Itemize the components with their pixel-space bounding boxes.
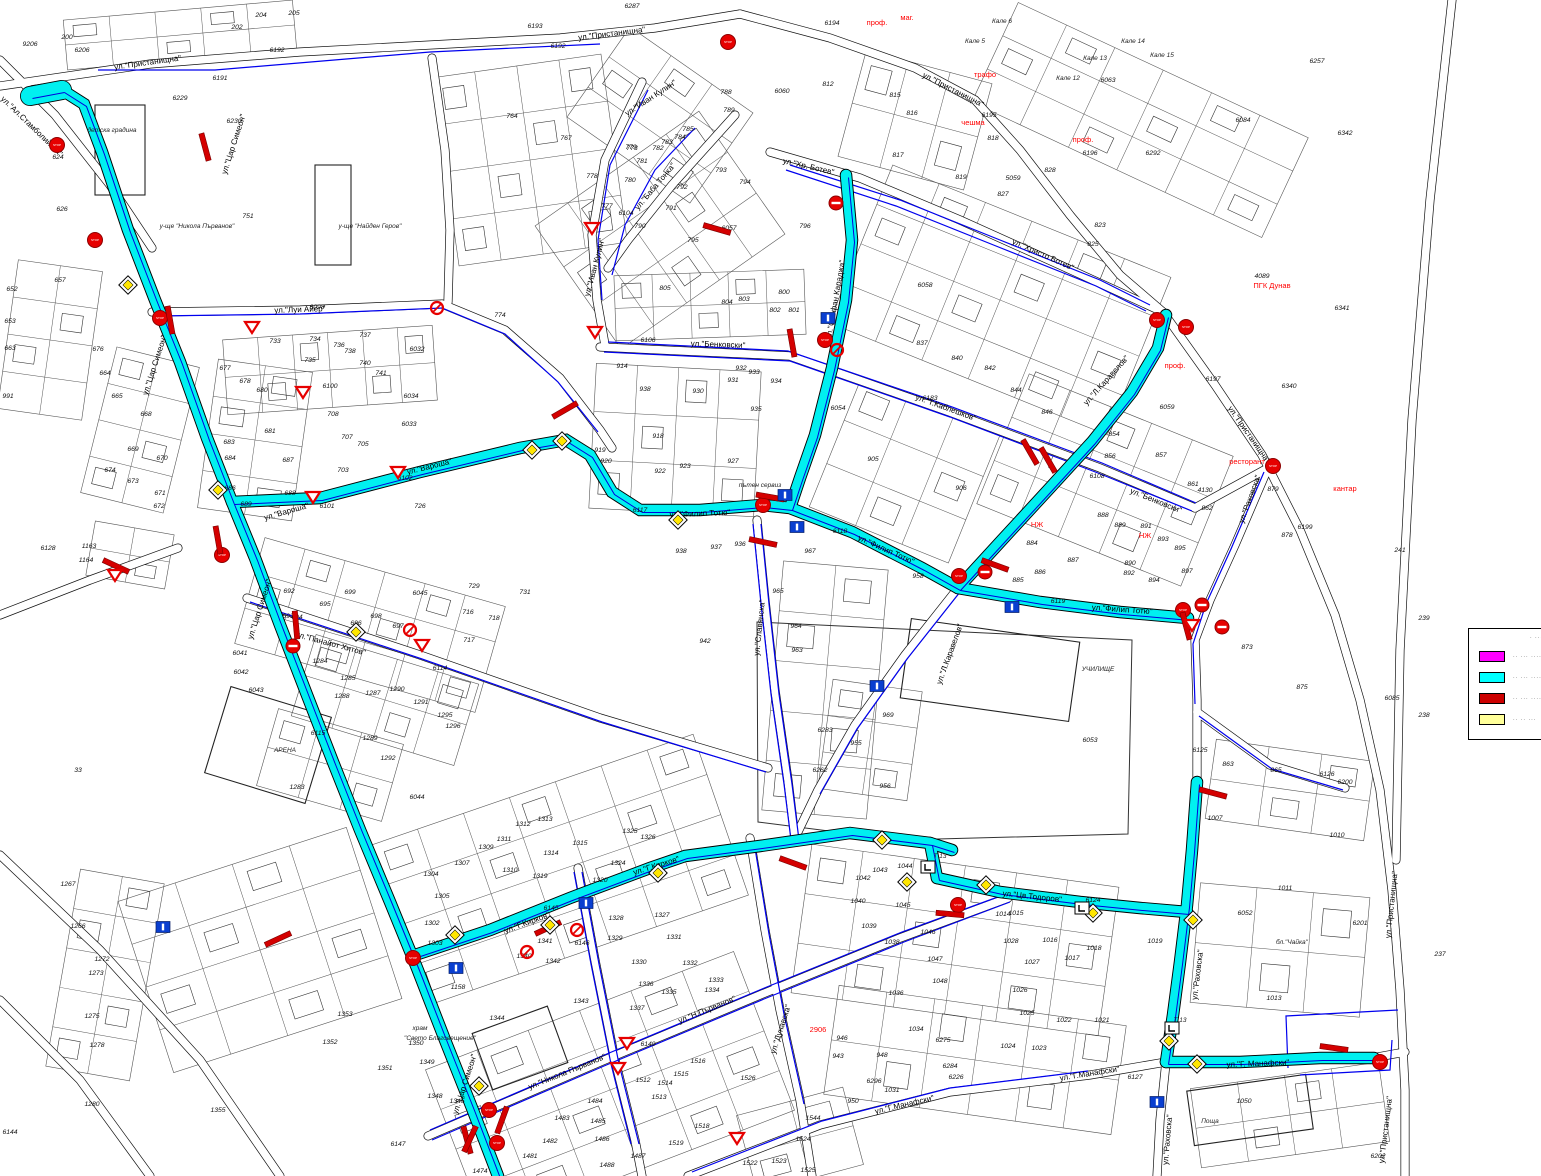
parcel-number: 202 — [230, 24, 243, 31]
parcel-number: 1280 — [84, 1101, 99, 1108]
parcel-number: 683 — [223, 439, 235, 446]
parcel-number: 779 — [625, 144, 637, 151]
street-label: ул."Луи Айер" — [274, 304, 326, 315]
parcel-number: 938 — [675, 548, 687, 555]
parcel-number: 1515 — [673, 1071, 688, 1078]
parcel-number: 652 — [6, 286, 18, 293]
parcel-number: 1048 — [932, 978, 947, 985]
parcel-number: 828 — [1044, 167, 1056, 174]
parcel-number: 237 — [1433, 951, 1446, 958]
parcel-number: 1312 — [515, 821, 530, 828]
parcel-number: 796 — [799, 223, 811, 230]
parcel-block — [291, 635, 478, 766]
parcel-number: 1487 — [630, 1153, 645, 1160]
parcel-number: 665 — [111, 393, 123, 400]
parcel-number: 6045 — [412, 590, 427, 597]
parcel-number: 673 — [127, 478, 139, 485]
parcel-number: 767 — [560, 135, 572, 142]
parcel-block — [829, 165, 1171, 435]
no-entry-sign-icon — [286, 639, 300, 653]
parcel-number: 937 — [710, 544, 722, 551]
map-legend: · ··· ·· ··· ······ ··· ······ ··· ·····… — [1468, 628, 1541, 740]
parcel-number: 9206 — [22, 41, 37, 48]
parcel-number: 789 — [723, 107, 735, 114]
parcel-number: 1523 — [771, 1158, 786, 1165]
parcel-number: 1018 — [1086, 945, 1101, 952]
parcel-number: 827 — [997, 191, 1009, 198]
parcel-number: 790 — [634, 223, 646, 230]
parcel-number: 734 — [309, 336, 321, 343]
parcel-block — [614, 269, 806, 341]
parcel-number: 737 — [359, 332, 371, 339]
parcel-block — [223, 325, 438, 414]
parcel-number: 741 — [375, 370, 387, 377]
parcel-block — [1205, 739, 1375, 840]
place-label: Кале 13 — [1083, 55, 1107, 62]
parcel-number: 684 — [224, 455, 236, 462]
parcel-number: 6085 — [1384, 695, 1399, 702]
place-label: Кале 6 — [992, 18, 1012, 25]
place-label: у-ще "Найден Геров" — [338, 222, 403, 230]
parcel-number: 738 — [344, 348, 356, 355]
parcel-number: 927 — [727, 458, 739, 465]
parcel-number: 792 — [676, 184, 688, 191]
building-outline — [315, 165, 351, 265]
info-sign-icon — [1150, 1097, 1164, 1108]
parcel-number: 863 — [1222, 761, 1234, 768]
parcel-number: 1343 — [573, 998, 588, 1005]
parcel-number: 1486 — [594, 1136, 609, 1143]
legend-item: ·· ··· ···· — [1479, 672, 1541, 683]
place-label: Кале 12 — [1056, 75, 1080, 82]
parcel-number: 678 — [239, 378, 251, 385]
parcel-number: 1163 — [82, 543, 97, 550]
parcel-number: 1484 — [587, 1098, 602, 1105]
stop-sign-icon: STOP — [1266, 459, 1281, 474]
parcel-number: 6201 — [1352, 920, 1367, 927]
parcel-number: 6127 — [1127, 1074, 1142, 1081]
white-sign-icon — [1165, 1022, 1179, 1034]
parcel-number: 782 — [652, 145, 664, 152]
parcel-number: 1284 — [312, 658, 327, 665]
svg-text:STOP: STOP — [1376, 1060, 1384, 1064]
parcel-number: 689 — [240, 501, 252, 508]
stop-sign-icon: STOP — [756, 498, 771, 513]
parcel-number: 967 — [804, 548, 816, 555]
parcel-number: 670 — [156, 455, 168, 462]
parcel-number: 914 — [616, 363, 628, 370]
parcel-number: 1289 — [362, 735, 377, 742]
parcel-number: 1025 — [1019, 1010, 1034, 1017]
stop-sign-icon: STOP — [952, 569, 967, 584]
parcel-number: 846 — [1041, 409, 1053, 416]
parcel-number: 922 — [654, 468, 666, 475]
place-label: Кале 14 — [1121, 38, 1145, 45]
street-label: ул."Г.Манафски" — [874, 1093, 935, 1115]
parcel-number: 6034 — [403, 393, 418, 400]
legend-header: · ··· — [1469, 635, 1541, 641]
parcel-number: 1325 — [622, 828, 637, 835]
parcel-number: 1522 — [742, 1160, 757, 1167]
parcel-number: 674 — [104, 467, 116, 474]
street-label: ул."Пристанищна" — [1377, 1096, 1394, 1164]
parcel-number: 800 — [778, 289, 790, 296]
parcel-number: 664 — [99, 370, 111, 377]
parcel-number: 1275 — [84, 1013, 99, 1020]
parcel-number: 857 — [1155, 452, 1167, 459]
parcel-number: 875 — [1296, 684, 1308, 691]
parcel-number: 886 — [1034, 569, 1046, 576]
parcel-number: 6084 — [1235, 117, 1250, 124]
parcel-number: 938 — [639, 386, 651, 393]
parcel-number: 671 — [154, 490, 166, 497]
parcel-number: 1034 — [908, 1026, 923, 1033]
parcel-number: 1324 — [610, 860, 625, 867]
parcel-number: 920 — [600, 458, 612, 465]
svg-text:STOP: STOP — [759, 503, 767, 507]
parcel-number: 1290 — [389, 686, 404, 693]
parcel-number: 879 — [1267, 486, 1279, 493]
parcel-number: 802 — [769, 307, 781, 314]
no-entry-sign-icon — [1215, 620, 1229, 634]
parcel-number: 1334 — [704, 987, 719, 994]
parcel-number: 726 — [414, 503, 426, 510]
svg-text:STOP: STOP — [493, 1141, 501, 1145]
parcel-number: 708 — [327, 411, 339, 418]
parcel-number: 844 — [1010, 387, 1022, 394]
street-label: ул."Пристанищна" — [578, 25, 646, 42]
parcel-number: 1516 — [690, 1058, 705, 1065]
parcel-number: 888 — [1097, 512, 1109, 519]
labels-layer: 9206200202204205620661926191622962306246… — [0, 3, 1446, 1175]
parcel-number: 943 — [832, 1053, 844, 1060]
parcel-number: 653 — [4, 318, 16, 325]
parcel-number: 1313 — [537, 816, 552, 823]
parcel-number: 933 — [748, 369, 760, 376]
parcel-number: 6100 — [322, 383, 337, 390]
stop-sign-icon: STOP — [1373, 1055, 1388, 1070]
no-entry-sign-icon — [978, 565, 992, 579]
parcel-number: 958 — [912, 573, 924, 580]
parcel-number: 931 — [727, 377, 739, 384]
parcel-number: 812 — [822, 81, 834, 88]
closure-bar-icon — [264, 931, 292, 948]
parcel-number: 1344 — [489, 1015, 504, 1022]
parcel-number: 204 — [254, 12, 267, 19]
poi-red-label: чешма — [961, 118, 985, 127]
parcel-number: 6108 — [1089, 473, 1104, 480]
parcel-number: 4089 — [1254, 273, 1269, 280]
parcel-number: 6128 — [40, 545, 55, 552]
parcel-number: 6341 — [1334, 305, 1349, 312]
parcel-number: 1307 — [454, 860, 469, 867]
parcel-number: 1027 — [1024, 959, 1039, 966]
legend-item: ·· ··· ···· — [1479, 693, 1541, 704]
parcel-number: 5059 — [1005, 175, 1020, 182]
parcel-number: 751 — [242, 213, 254, 220]
parcel-number: 956 — [879, 783, 891, 790]
stop-sign-icon: STOP — [951, 898, 966, 913]
parcel-number: 6192 — [269, 47, 284, 54]
parcel-number: 6226 — [948, 1074, 963, 1081]
svg-text:STOP: STOP — [1269, 464, 1277, 468]
parcel-number: 932 — [735, 365, 747, 372]
parcel-number: 948 — [876, 1052, 888, 1059]
parcel-number: 1482 — [542, 1138, 557, 1145]
parcel-number: 6054 — [830, 405, 845, 412]
poi-red-label: 2906 — [810, 1025, 827, 1034]
parcel-number: 1296 — [445, 723, 460, 730]
svg-text:STOP: STOP — [409, 956, 417, 960]
parcel-number: 1333 — [708, 977, 723, 984]
parcel-number: 785 — [682, 126, 694, 133]
parcel-number: 6147 — [390, 1141, 405, 1148]
parcel-number: 1046 — [920, 929, 935, 936]
parcel-number: 1044 — [897, 863, 912, 870]
parcel-number: 6284 — [942, 1063, 957, 1070]
parcel-number: 1291 — [413, 699, 428, 706]
parcel-number: 842 — [984, 365, 996, 372]
parcel-number: 963 — [791, 647, 803, 654]
parcel-number: 1295 — [437, 712, 452, 719]
parcel-number: 1015 — [1008, 910, 1023, 917]
stop-sign-icon: STOP — [88, 233, 103, 248]
poi-red-label: кантар — [1333, 484, 1356, 493]
street-label: ул."Филип Тотю" — [856, 533, 915, 566]
closure-bar-icon — [779, 856, 807, 870]
poi-red-label: НЖ — [1031, 520, 1043, 529]
parcel-number: 895 — [1174, 545, 1186, 552]
parcel-number: 1337 — [629, 1005, 644, 1012]
parcel-number: 801 — [788, 307, 800, 314]
priority-road-sign-icon — [898, 873, 916, 891]
stop-sign-icon: STOP — [50, 138, 65, 153]
info-sign-icon — [449, 963, 463, 974]
parcel-number: 241 — [1393, 547, 1406, 554]
parcel-number: 1315 — [572, 840, 587, 847]
parcel-number: 6342 — [1337, 130, 1352, 137]
poi-red-label: ресторант — [1229, 457, 1265, 466]
parcel-number: 718 — [488, 615, 500, 622]
parcel-number: 717 — [463, 637, 475, 644]
info-sign-icon — [870, 681, 884, 692]
parcel-number: 795 — [687, 237, 699, 244]
stop-sign-icon: STOP — [153, 311, 168, 326]
parcel-number: 923 — [679, 463, 691, 470]
parcel-number: 692 — [283, 588, 295, 595]
parcel-number: 1355 — [210, 1107, 225, 1114]
parcel-number: 6058 — [917, 282, 932, 289]
stop-sign-icon: STOP — [482, 1103, 497, 1118]
parcel-number: 892 — [1123, 570, 1135, 577]
parcel-number: 729 — [468, 583, 480, 590]
parcel-number: 1326 — [640, 834, 655, 841]
parcel-number: 1267 — [60, 881, 75, 888]
info-sign-icon — [821, 313, 835, 324]
parcel-number: 1158 — [451, 984, 466, 991]
parcel-number: 6053 — [1082, 737, 1097, 744]
parcel-number: 6043 — [248, 687, 263, 694]
parcel-number: 1305 — [434, 893, 449, 900]
parcel-number: 784 — [674, 134, 686, 141]
parcel-number: 1514 — [657, 1080, 672, 1087]
parcel-number: 794 — [739, 179, 751, 186]
parcel-number: 1287 — [365, 690, 380, 697]
parcel-number: 239 — [1417, 615, 1430, 622]
info-sign-icon — [579, 898, 593, 909]
parcel-number: 6193 — [527, 23, 542, 30]
parcel-number: 6126 — [1319, 771, 1334, 778]
parcel-number: 783 — [661, 139, 673, 146]
info-sign-icon — [156, 922, 170, 933]
parcel-number: 1292 — [380, 755, 395, 762]
parcel-number: 1273 — [88, 970, 103, 977]
parcel-number: 6206 — [74, 47, 89, 54]
parcel-number: 1283 — [289, 784, 304, 791]
parcel-number: 6118 — [833, 528, 848, 535]
parcel-number: 676 — [92, 346, 104, 353]
parcel-number: 1016 — [1042, 937, 1057, 944]
parcel-number: 918 — [652, 433, 664, 440]
parcel-number: 1352 — [322, 1039, 337, 1046]
svg-text:STOP: STOP — [53, 143, 61, 147]
street-label: ул."Г. Манафски" — [1226, 1058, 1289, 1069]
parcel-number: 6194 — [824, 20, 839, 27]
parcel-number: 1518 — [694, 1123, 709, 1130]
no-stopping-sign-icon — [404, 624, 416, 636]
parcel-number: 815 — [889, 92, 901, 99]
parcel-number: 699 — [344, 589, 356, 596]
parcel-number: 865 — [1270, 767, 1282, 774]
parcel-number: 891 — [1140, 523, 1152, 530]
parcel-number: 731 — [519, 589, 531, 596]
parcel-number: 1311 — [497, 836, 512, 843]
closure-bar-icon — [1320, 1043, 1348, 1052]
parcel-number: 950 — [847, 1098, 859, 1105]
street-label: ул."Христо Ботев" — [1011, 237, 1076, 272]
parcel-number: 889 — [1114, 522, 1126, 529]
poi-red-label: НЖ — [1139, 531, 1151, 540]
place-label: Кале 5 — [965, 38, 985, 45]
place-label: детска градина — [87, 126, 136, 134]
parcel-number: 733 — [269, 338, 281, 345]
parcel-number: 1349 — [419, 1059, 434, 1066]
stop-sign-icon: STOP — [721, 35, 736, 50]
parcel-number: 681 — [264, 428, 276, 435]
parcel-number: 1328 — [608, 915, 623, 922]
poi-red-label: проф. — [1165, 361, 1186, 370]
street-label: ул."Г.Манафски" — [1059, 1064, 1120, 1082]
place-label: храм — [412, 1025, 428, 1032]
parcel-number: 703 — [337, 467, 349, 474]
parcel-number: 6063 — [1100, 77, 1115, 84]
legend-swatch-icon — [1479, 693, 1505, 704]
parcel-number: 930 — [692, 388, 704, 395]
parcel-number: 1335 — [661, 989, 676, 996]
parcel-block — [1190, 1062, 1389, 1168]
parcel-number: 4130 — [1197, 487, 1212, 494]
parcel-number: 964 — [790, 623, 802, 630]
parcel-number: 1023 — [1031, 1045, 1046, 1052]
parcel-number: 894 — [1148, 577, 1160, 584]
parcel-number: 1329 — [607, 935, 622, 942]
parcel-number: 6287 — [624, 3, 639, 10]
parcel-number: 1320 — [592, 877, 607, 884]
parcel-number: 887 — [1067, 557, 1079, 564]
parcel-number: 817 — [892, 152, 904, 159]
svg-text:STOP: STOP — [485, 1108, 493, 1112]
stop-sign-icon: STOP — [490, 1136, 505, 1151]
parcel-number: 1278 — [89, 1042, 104, 1049]
parcel-number: 854 — [1108, 431, 1120, 438]
no-entry-sign-icon — [829, 196, 843, 210]
parcel-number: 1351 — [377, 1065, 392, 1072]
parcel-number: 1021 — [1094, 1017, 1109, 1024]
parcel-number: 805 — [659, 285, 671, 292]
parcel-number: 1038 — [884, 939, 899, 946]
parcel-number: 1164 — [79, 557, 94, 564]
legend-item: ·· ··· ···· — [1479, 651, 1541, 662]
parcel-number: 1330 — [631, 959, 646, 966]
parcel-number: 6104 — [618, 210, 633, 217]
parcel-number: 825 — [1087, 241, 1099, 248]
parcel-number: 1483 — [554, 1115, 569, 1122]
parcel-number: 697 — [392, 623, 404, 630]
parcel-number: 705 — [357, 441, 369, 448]
place-label: Т 13 — [933, 853, 946, 860]
parcel-number: 6059 — [1159, 404, 1174, 411]
parcel-number: 1341 — [537, 938, 552, 945]
parcel-number: 893 — [1157, 536, 1169, 543]
street-label: ул."Пристанищна" — [114, 53, 182, 71]
parcel-number: 707 — [341, 434, 353, 441]
street-label: ул."Бенковски" — [691, 339, 746, 350]
stop-sign-icon: STOP — [1150, 313, 1165, 328]
parcel-number: 6106 — [640, 337, 655, 344]
parcel-number: 1526 — [740, 1075, 755, 1082]
building-outline — [1187, 1074, 1313, 1145]
parcel-number: 6119 — [1051, 598, 1066, 605]
stop-sign-icon: STOP — [818, 333, 833, 348]
parcel-number: 777 — [601, 203, 613, 210]
parcel-number: 1519 — [668, 1140, 683, 1147]
parcel-number: 669 — [127, 446, 139, 453]
yield-sign-icon — [296, 387, 310, 398]
poi-red-label: маг. — [900, 13, 913, 22]
closure-bar-icon — [213, 526, 223, 554]
parcel-number: 1039 — [861, 923, 876, 930]
parcel-number: 1474 — [472, 1168, 487, 1175]
parcel-number: 919 — [594, 447, 606, 454]
parcel-number: 1028 — [1003, 938, 1018, 945]
parcel-number: 1011 — [1278, 885, 1293, 892]
parcel-number: 1331 — [666, 934, 681, 941]
info-sign-icon — [790, 522, 804, 533]
legend-label: ·· ··· ···· — [1513, 696, 1541, 702]
legend-swatch-icon — [1479, 651, 1505, 662]
parcel-number: 1024 — [1000, 1043, 1015, 1050]
parcel-number: 1043 — [872, 867, 887, 874]
parcel-number: 1319 — [532, 873, 547, 880]
map-viewport: 9206200202204205620661926191622962306246… — [0, 0, 1541, 1176]
parcel-number: 716 — [462, 609, 474, 616]
parcel-number: 1272 — [94, 956, 109, 963]
parcel-block — [977, 374, 1233, 586]
parcel-number: 936 — [734, 541, 746, 548]
parcel-number: 6032 — [409, 346, 424, 353]
place-label: АРЕНА — [273, 747, 296, 754]
parcel-number: 819 — [955, 174, 967, 181]
